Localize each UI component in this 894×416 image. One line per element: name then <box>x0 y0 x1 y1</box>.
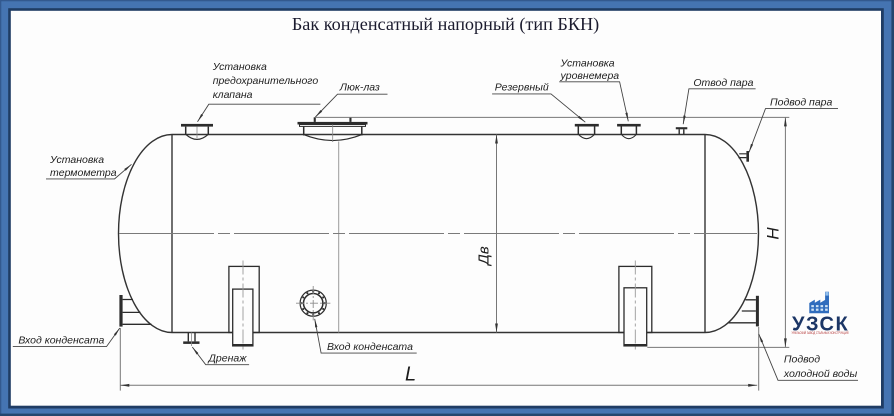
svg-text:термометра: термометра <box>50 167 117 179</box>
svg-text:Вход конденсата: Вход конденсата <box>327 341 413 353</box>
svg-text:Подвод пара: Подвод пара <box>770 97 833 109</box>
svg-text:Отвод пара: Отвод пара <box>693 77 753 89</box>
svg-text:Вход конденсата: Вход конденсата <box>18 335 104 347</box>
svg-text:Дв: Дв <box>476 246 493 267</box>
svg-text:Установка: Установка <box>560 58 615 70</box>
svg-text:Резервный: Резервный <box>495 82 549 94</box>
svg-text:Н: Н <box>764 227 783 240</box>
svg-text:Дренаж: Дренаж <box>208 353 248 365</box>
svg-text:Установка: Установка <box>49 154 104 166</box>
svg-text:холодной воды: холодной воды <box>783 368 858 380</box>
svg-text:Подвод: Подвод <box>784 354 820 366</box>
svg-text:клапана: клапана <box>213 89 253 101</box>
svg-text:Установка: Установка <box>212 61 267 73</box>
svg-text:предохранительного: предохранительного <box>213 75 319 87</box>
svg-text:Люк-лаз: Люк-лаз <box>339 82 380 94</box>
svg-text:Бак конденсатный напорный (тип: Бак конденсатный напорный (тип БКН) <box>292 14 599 35</box>
svg-text:УРАЛЬСКИЙ ЗАВОД СТАЛЬНЫХ КОНСТ: УРАЛЬСКИЙ ЗАВОД СТАЛЬНЫХ КОНСТРУКЦИЙ <box>792 331 849 335</box>
svg-text:L: L <box>405 364 416 386</box>
svg-text:уровнемера: уровнемера <box>560 70 620 82</box>
